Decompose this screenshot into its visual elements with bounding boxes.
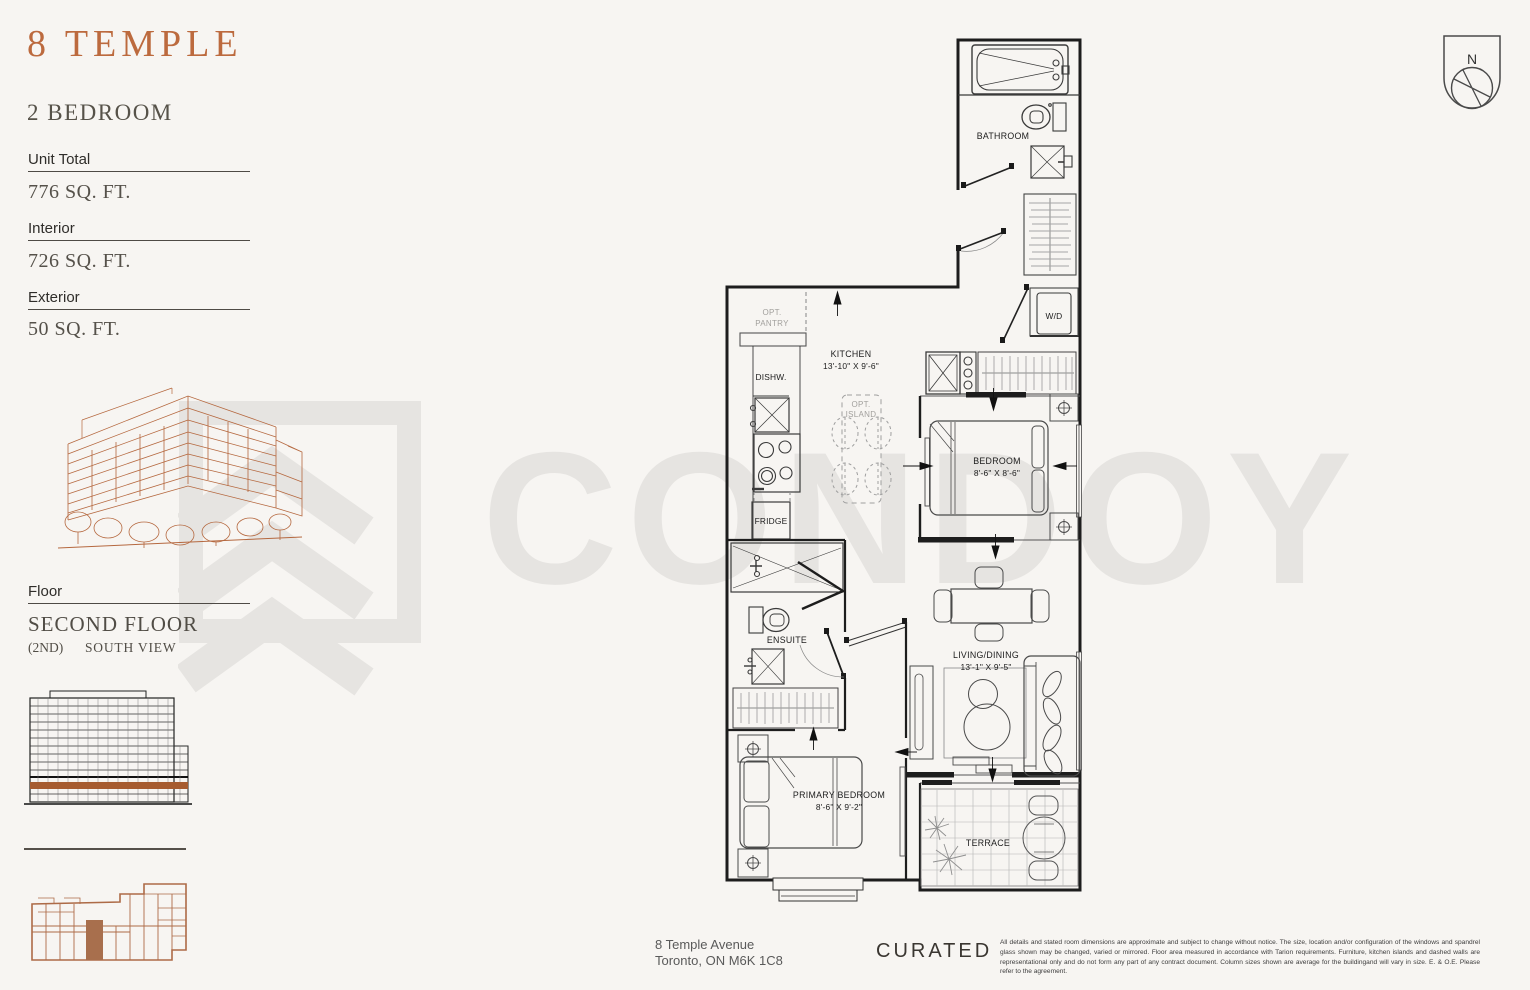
- primary-bedroom-dims: 8'-6" X 9'-2": [816, 802, 862, 812]
- divider: [24, 848, 186, 850]
- bedroom-closet: [978, 352, 1076, 394]
- project-address: 8 Temple Avenue Toronto, ON M6K 1C8: [655, 937, 783, 969]
- project-logo: 8 TEMPLE: [27, 22, 243, 66]
- compass: N: [1438, 26, 1506, 122]
- compass-north-label: N: [1467, 51, 1477, 67]
- washer-dryer: [1000, 284, 1080, 343]
- primary-window: [773, 878, 863, 901]
- wd-label: W/D: [1046, 311, 1063, 321]
- stat-label-exterior: Exterior: [28, 289, 80, 306]
- divider: [28, 603, 250, 604]
- primary-bedroom-label: PRIMARY BEDROOM: [793, 790, 885, 800]
- building-rendering-sketch: [52, 380, 304, 558]
- stat-value-unit-total: 776 SQ. FT.: [28, 181, 131, 204]
- fridge-label: FRIDGE: [755, 516, 788, 526]
- room-labels: BATHROOM W/D OPT. PANTRY KITCHEN 13'-10"…: [755, 131, 1063, 848]
- entry-closet: [1024, 194, 1076, 275]
- pantry-label: OPT.: [763, 308, 782, 317]
- bedroom-label: BEDROOM: [973, 456, 1021, 466]
- ensuite-label: ENSUITE: [767, 635, 807, 645]
- kitchen-label: KITCHEN: [831, 349, 872, 359]
- curated-brand-logo: CURATED: [876, 940, 992, 963]
- unit-floorplan: BATHROOM W/D OPT. PANTRY KITCHEN 13'-10"…: [690, 25, 1100, 915]
- unit-type-heading: 2 BEDROOM: [27, 100, 173, 126]
- living-dining-label: LIVING/DINING: [953, 650, 1019, 660]
- kitchen-dims: 13'-10" X 9'-6": [823, 361, 879, 371]
- divider: [28, 309, 250, 310]
- stat-value-exterior: 50 SQ. FT.: [28, 318, 120, 341]
- plant: [925, 816, 966, 875]
- terrace-label: TERRACE: [966, 838, 1010, 848]
- kitchen-wall-counter: [926, 352, 976, 394]
- primary-closet: [733, 688, 838, 728]
- keyplan-unit-highlight: [86, 920, 103, 960]
- building-elevation-diagram: [22, 684, 194, 816]
- address-line1: 8 Temple Avenue: [655, 937, 783, 953]
- highlighted-floor-band: [30, 782, 188, 789]
- living-dining-dims: 13'-1" X 9'-5": [960, 662, 1011, 672]
- entry-doors: [956, 163, 1014, 251]
- floor-label: Floor: [28, 583, 62, 600]
- pantry-label: PANTRY: [755, 319, 789, 328]
- legal-disclaimer: All details and stated room dimensions a…: [1000, 938, 1480, 977]
- bathroom-label: BATHROOM: [977, 131, 1030, 141]
- address-line2: Toronto, ON M6K 1C8: [655, 953, 783, 969]
- keyplan-diagram: [24, 868, 192, 970]
- perimeter-walls: [727, 40, 1080, 890]
- island-label: OPT.: [852, 400, 871, 409]
- bedroom-furniture: [930, 394, 1078, 540]
- kitchen-fixtures: [740, 292, 806, 540]
- bathroom-fixtures: [958, 45, 1080, 178]
- stat-value-interior: 726 SQ. FT.: [28, 250, 131, 273]
- bedroom-dims: 8'-6" X 8'-6": [974, 468, 1020, 478]
- floor-number: (2ND): [28, 640, 63, 656]
- stat-label-unit-total: Unit Total: [28, 151, 90, 168]
- island-label: ISLAND: [846, 410, 877, 419]
- ensuite-fixtures: [731, 543, 846, 684]
- floor-view: SOUTH VIEW: [85, 640, 176, 656]
- stat-label-interior: Interior: [28, 220, 75, 237]
- divider: [28, 171, 250, 172]
- dishwasher-label: DISHW.: [756, 372, 787, 382]
- floorplan-page: CONDOY 8 TEMPLE 2 BEDROOM Unit Total 776…: [0, 0, 1530, 990]
- floor-name: SECOND FLOOR: [28, 612, 198, 637]
- divider: [28, 240, 250, 241]
